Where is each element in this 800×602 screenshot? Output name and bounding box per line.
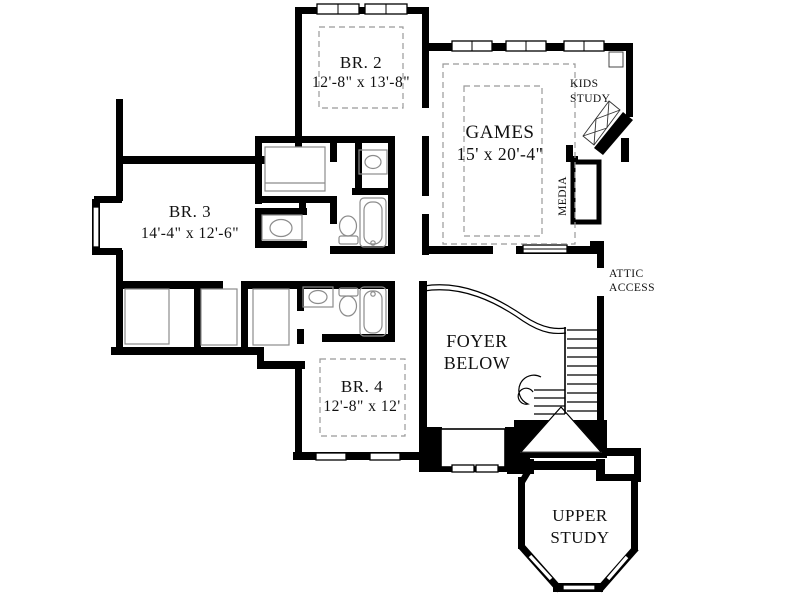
kids-study-label-line1: KIDS — [570, 78, 598, 90]
media-label: MEDIA — [557, 176, 569, 216]
kids-study-label-line2: STUDY — [570, 93, 611, 105]
br3-label: BR. 3 — [169, 202, 211, 221]
floor-plan: BR. 2 12'-8" x 13'-8" GAMES 15' x 20'-4"… — [0, 0, 800, 602]
br2-label: BR. 2 — [340, 53, 382, 72]
foyer-label-line1: FOYER — [446, 331, 508, 351]
closet-shelf — [201, 289, 237, 345]
windows — [93, 4, 604, 590]
walls — [92, 7, 641, 592]
floor-plan-drawing: BR. 2 12'-8" x 13'-8" GAMES 15' x 20'-4"… — [0, 0, 800, 602]
vanity-sink — [262, 215, 302, 240]
closet-shelf — [125, 289, 169, 344]
media-cabinet — [573, 162, 599, 222]
vanity-sink — [303, 287, 333, 307]
br3-dims: 14'-4" x 12'-6" — [141, 225, 239, 242]
upper-study-label-line1: UPPER — [552, 506, 608, 525]
upper-study-label-line2: STUDY — [550, 528, 609, 547]
room-labels: BR. 2 12'-8" x 13'-8" GAMES 15' x 20'-4"… — [141, 53, 610, 547]
attic-access-label-line2: ACCESS — [609, 282, 655, 294]
bathtub — [360, 287, 386, 336]
vanity-sink — [359, 150, 387, 174]
closet-shelf — [253, 289, 289, 345]
br4-dims: 12'-8" x 12' — [323, 398, 400, 415]
games-label: GAMES — [465, 122, 534, 143]
br4-label: BR. 4 — [341, 377, 383, 396]
attic-access-label-line1: ATTIC — [609, 268, 644, 280]
toilet — [339, 288, 358, 316]
br2-dims: 12'-8" x 13'-8" — [312, 74, 410, 91]
closet-shelf — [265, 147, 325, 191]
games-dims: 15' x 20'-4" — [457, 144, 544, 164]
foyer-label-line2: BELOW — [444, 353, 510, 373]
toilet — [339, 216, 358, 244]
cabinet — [609, 52, 623, 67]
balcony-rail — [424, 290, 566, 334]
balcony-rail — [424, 285, 566, 329]
bathtub — [360, 198, 386, 247]
